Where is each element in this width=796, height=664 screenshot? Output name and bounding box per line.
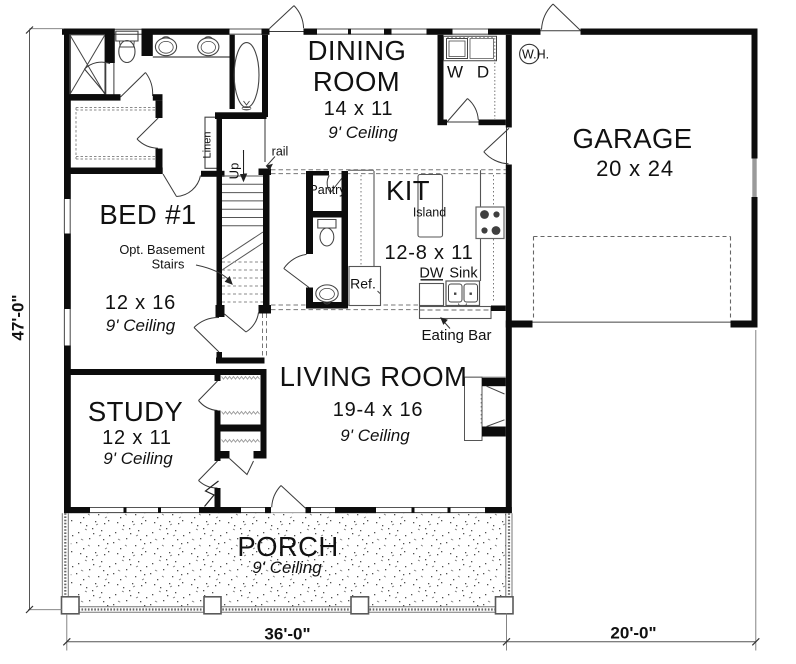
svg-text:Up: Up: [227, 163, 242, 180]
svg-text:36'-0": 36'-0": [264, 625, 310, 644]
svg-text:9' Ceiling: 9' Ceiling: [252, 558, 322, 577]
svg-text:Island: Island: [413, 206, 446, 220]
svg-text:19-4 x 16: 19-4 x 16: [333, 399, 424, 421]
svg-text:W.H.: W.H.: [522, 48, 549, 62]
svg-text:20'-0": 20'-0": [610, 624, 656, 643]
svg-text:DINING: DINING: [308, 35, 407, 66]
svg-text:9' Ceiling: 9' Ceiling: [103, 449, 173, 468]
svg-text:D: D: [477, 63, 489, 82]
svg-text:Eating Bar: Eating Bar: [421, 327, 491, 344]
svg-text:STUDY: STUDY: [88, 396, 183, 427]
svg-text:rail: rail: [272, 145, 289, 159]
svg-text:KIT: KIT: [386, 175, 430, 206]
svg-text:ROOM: ROOM: [313, 66, 400, 97]
svg-text:14 x 11: 14 x 11: [324, 98, 394, 120]
svg-text:12-8 x 11: 12-8 x 11: [384, 242, 473, 264]
svg-text:12 x 11: 12 x 11: [102, 427, 172, 449]
svg-text:Linen: Linen: [202, 132, 214, 159]
svg-text:Opt. Basement: Opt. Basement: [119, 242, 205, 257]
svg-text:9' Ceiling: 9' Ceiling: [106, 316, 176, 335]
svg-text:Sink: Sink: [449, 266, 478, 282]
svg-text:BED #1: BED #1: [99, 199, 196, 230]
svg-text:Pantry: Pantry: [309, 183, 346, 197]
svg-text:DW: DW: [419, 266, 443, 282]
svg-text:47'-0": 47'-0": [9, 294, 28, 340]
svg-text:Ref.: Ref.: [350, 276, 376, 292]
svg-text:GARAGE: GARAGE: [572, 123, 692, 154]
svg-text:20 x 24: 20 x 24: [596, 156, 674, 181]
svg-text:9' Ceiling: 9' Ceiling: [340, 426, 410, 445]
svg-text:LIVING ROOM: LIVING ROOM: [280, 361, 468, 392]
svg-text:W: W: [447, 63, 463, 82]
svg-text:12 x 16: 12 x 16: [105, 292, 176, 314]
svg-text:9' Ceiling: 9' Ceiling: [328, 123, 398, 142]
svg-text:Stairs: Stairs: [152, 257, 185, 272]
